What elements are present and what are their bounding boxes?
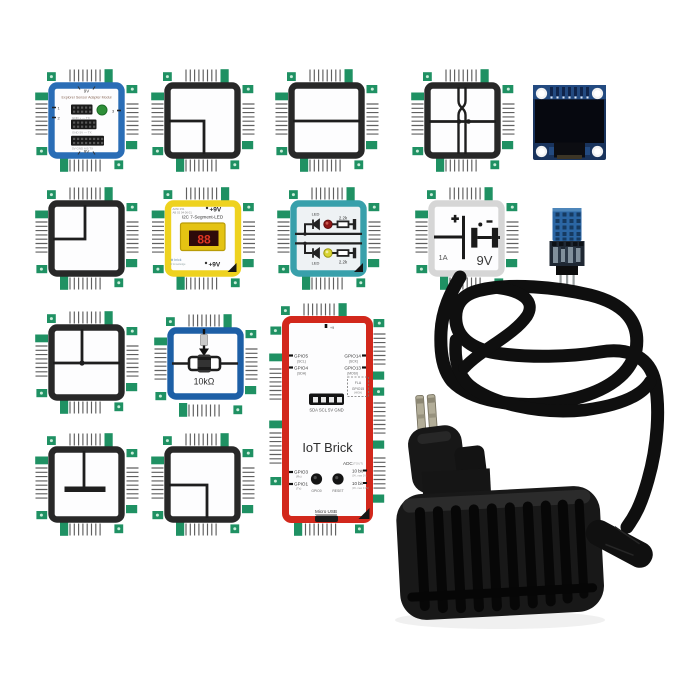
svg-text:(TOUT): (TOUT): [353, 462, 363, 466]
svg-text:R knowledge: R knowledge: [171, 262, 187, 266]
svg-text:(SDA): (SDA): [297, 372, 306, 376]
svg-text:9V: 9V: [477, 253, 493, 268]
svg-text:Explorer Sensor Adapter Modul: Explorer Sensor Adapter Modul: [62, 96, 112, 100]
svg-text:GPIO14: GPIO14: [344, 354, 361, 359]
svg-text:(Tx): (Tx): [296, 487, 301, 491]
svg-text:I2C 7-Segment-LED: I2C 7-Segment-LED: [182, 215, 224, 220]
svg-text:10kΩ: 10kΩ: [194, 377, 215, 387]
svg-text:GPIO5: GPIO5: [294, 354, 308, 359]
svg-text:(0V..max 3.3V): (0V..max 3.3V): [352, 486, 369, 490]
svg-text:5V GND A B TX: 5V GND A B TX: [72, 147, 93, 151]
svg-text:FLA: FLA: [355, 381, 362, 385]
svg-text:(MOSI): (MOSI): [347, 372, 358, 376]
svg-text:10 bit: 10 bit: [352, 481, 364, 486]
svg-text:+9: +9: [330, 326, 334, 330]
svg-text:GPIO0: GPIO0: [311, 489, 321, 493]
svg-text:Micro USB: Micro USB: [315, 509, 337, 514]
svg-text:GPIO13: GPIO13: [344, 366, 361, 371]
svg-text:+9V: +9V: [209, 262, 221, 269]
svg-text:88: 88: [197, 233, 211, 247]
svg-text:2.2k: 2.2k: [339, 215, 348, 220]
svg-text:(SCK): (SCK): [349, 360, 358, 364]
svg-text:+9V: +9V: [210, 207, 222, 214]
svg-text:(SCL): (SCL): [297, 360, 306, 364]
svg-text:LED: LED: [312, 212, 320, 217]
svg-text:SDA SCL 5V GND: SDA SCL 5V GND: [309, 408, 343, 413]
svg-text:10 bit: 10 bit: [352, 469, 364, 474]
svg-text:2.2k: 2.2k: [339, 260, 348, 265]
svg-text:ADC: ADC: [343, 461, 353, 466]
svg-text:GND 5V — TX: GND 5V — TX: [72, 131, 92, 135]
svg-text:9V: 9V: [84, 149, 90, 154]
svg-text:RESET: RESET: [332, 489, 343, 493]
svg-text:1A: 1A: [439, 253, 448, 262]
svg-text:GPIO4: GPIO4: [294, 366, 308, 371]
svg-text:(Rx): (Rx): [296, 475, 302, 479]
svg-text:(0V..max 1V): (0V..max 1V): [352, 474, 367, 478]
svg-text:GND + — TX: GND + — TX: [72, 116, 90, 120]
svg-text:GPIO15: GPIO15: [352, 387, 364, 391]
svg-text:(HIGH): (HIGH): [354, 391, 362, 395]
svg-text:LED: LED: [312, 261, 320, 266]
svg-text:IoT Brick: IoT Brick: [302, 440, 353, 455]
svg-text:⊕ brick: ⊕ brick: [171, 258, 182, 262]
svg-text:9V: 9V: [84, 89, 90, 94]
